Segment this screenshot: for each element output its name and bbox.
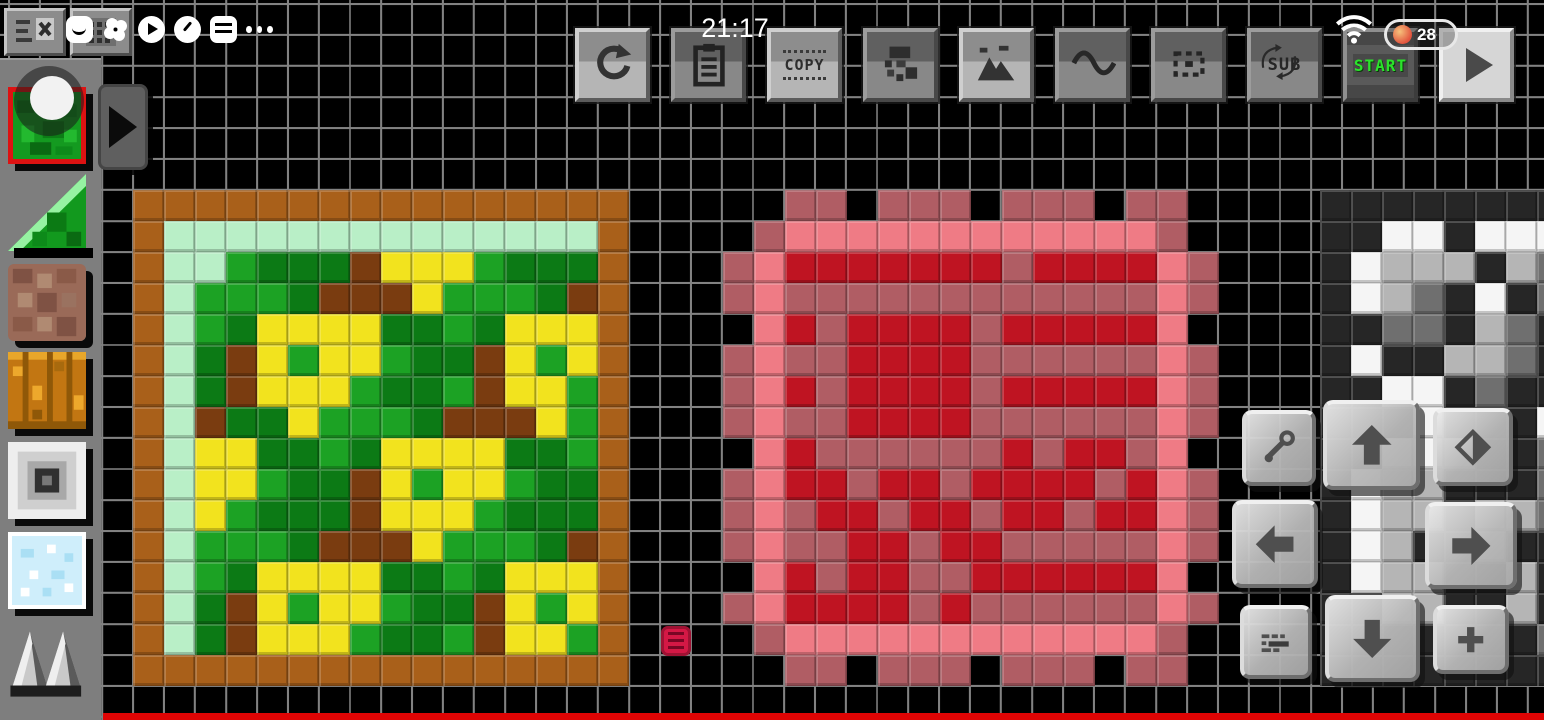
pixel-cell[interactable] [319,345,350,376]
pixel-cell[interactable] [319,314,350,345]
pixel-cell[interactable] [1157,407,1188,438]
pixel-cell[interactable] [1157,469,1188,500]
pixel-cell[interactable] [816,593,847,624]
pixel-cell[interactable] [1095,252,1126,283]
pixel-cell[interactable] [443,407,474,438]
pixel-cell[interactable] [536,593,567,624]
pixel-cell[interactable] [1188,252,1219,283]
pixel-cell[interactable] [816,221,847,252]
pixel-cell[interactable] [909,500,940,531]
pixel-cell[interactable] [598,376,629,407]
pixel-cell[interactable] [505,221,536,252]
pixel-cell[interactable] [878,562,909,593]
pixel-cell[interactable] [443,655,474,686]
pixel-cell[interactable] [288,562,319,593]
pixel-cell[interactable] [164,500,195,531]
pixel-cell[interactable] [1351,283,1382,314]
pixel-cell[interactable] [1126,655,1157,686]
pixel-cell[interactable] [1095,500,1126,531]
pixel-cell[interactable] [1188,376,1219,407]
pixel-cell[interactable] [1095,469,1126,500]
pixel-cell[interactable] [1064,655,1095,686]
pixel-cell[interactable] [847,407,878,438]
pixel-cell[interactable] [1033,562,1064,593]
pixel-cell[interactable] [443,500,474,531]
pixel-cell[interactable] [785,531,816,562]
pixel-cell[interactable] [971,624,1002,655]
pixel-cell[interactable] [257,376,288,407]
pixel-cell[interactable] [536,438,567,469]
pixel-cell[interactable] [195,500,226,531]
pixel-cell[interactable] [1188,345,1219,376]
pixel-cell[interactable] [1033,438,1064,469]
pixel-cell[interactable] [1033,190,1064,221]
pixel-cell[interactable] [971,469,1002,500]
pixel-cell[interactable] [319,283,350,314]
pixel-cell[interactable] [226,221,257,252]
pixel-cell[interactable] [940,190,971,221]
pixel-cell[interactable] [940,221,971,252]
pixel-cell[interactable] [1095,283,1126,314]
pixel-cell[interactable] [785,345,816,376]
pixel-cell[interactable] [412,190,443,221]
pixel-cell[interactable] [1537,376,1544,407]
pixel-cell[interactable] [754,252,785,283]
pixel-cell[interactable] [257,469,288,500]
pixel-cell[interactable] [1320,221,1351,252]
pixel-cell[interactable] [319,190,350,221]
clipboard-button[interactable] [671,28,746,102]
pixel-cell[interactable] [381,376,412,407]
pixel-cell[interactable] [443,314,474,345]
pixel-cell[interactable] [381,562,412,593]
pixel-cell[interactable] [133,345,164,376]
pixel-cell[interactable] [909,221,940,252]
pixel-cell[interactable] [598,252,629,283]
pixel-cell[interactable] [1413,345,1444,376]
pixel-cell[interactable] [1537,655,1544,686]
plus-button[interactable] [1433,605,1509,674]
pixel-cell[interactable] [567,376,598,407]
pixel-cell[interactable] [1382,531,1413,562]
pixel-cell[interactable] [381,438,412,469]
sidebar-item-ice-block[interactable] [8,532,86,609]
pixel-cell[interactable] [1537,345,1544,376]
pixel-cell[interactable] [754,500,785,531]
pixel-cell[interactable] [1475,345,1506,376]
pixel-cell[interactable] [1126,221,1157,252]
pixel-cell[interactable] [909,531,940,562]
pixel-cell[interactable] [412,221,443,252]
pixel-cell[interactable] [474,407,505,438]
pixel-cell[interactable] [816,376,847,407]
pixel-cell[interactable] [754,221,785,252]
pixel-cell[interactable] [1413,283,1444,314]
pixel-cell[interactable] [1002,438,1033,469]
pixel-cell[interactable] [164,190,195,221]
pixel-cell[interactable] [1033,345,1064,376]
pixel-cell[interactable] [878,500,909,531]
pixel-cell[interactable] [133,314,164,345]
pixel-cell[interactable] [1095,345,1126,376]
pixel-cell[interactable] [381,500,412,531]
pixel-cell[interactable] [909,314,940,345]
pixel-cell[interactable] [164,593,195,624]
pixel-cell[interactable] [1382,314,1413,345]
pixel-cell[interactable] [412,345,443,376]
pixel-cell[interactable] [536,407,567,438]
pixel-cell[interactable] [505,593,536,624]
pixel-cell[interactable] [226,469,257,500]
pixel-cell[interactable] [1064,531,1095,562]
pixel-cell[interactable] [381,190,412,221]
pixel-cell[interactable] [133,376,164,407]
pixel-cell[interactable] [1095,624,1126,655]
pixel-cell[interactable] [319,655,350,686]
pixel-cell[interactable] [164,438,195,469]
sidebar-item-spikes-block[interactable] [8,622,86,699]
pixel-cell[interactable] [474,252,505,283]
pixel-cell[interactable] [878,190,909,221]
pixel-cell[interactable] [1064,593,1095,624]
pixel-cell[interactable] [598,469,629,500]
pixel-cell[interactable] [536,469,567,500]
pixel-cell[interactable] [878,345,909,376]
pixel-cell[interactable] [1064,314,1095,345]
pixel-cell[interactable] [195,593,226,624]
pixel-cell[interactable] [847,531,878,562]
pixel-cell[interactable] [350,500,381,531]
pixel-cell[interactable] [598,190,629,221]
pixel-cell[interactable] [1033,531,1064,562]
pixel-cell[interactable] [878,593,909,624]
pixel-cell[interactable] [474,469,505,500]
right-button[interactable] [1425,502,1517,589]
pixel-cell[interactable] [909,655,940,686]
pixel-cell[interactable] [1382,562,1413,593]
pixel-cell[interactable] [1002,314,1033,345]
pixel-cell[interactable] [909,438,940,469]
pixel-cell[interactable] [443,345,474,376]
pixel-cell[interactable] [567,593,598,624]
pixel-cell[interactable] [878,438,909,469]
pixel-cell[interactable] [1064,562,1095,593]
pixel-cell[interactable] [909,345,940,376]
pixel-cell[interactable] [723,252,754,283]
pixel-cell[interactable] [1157,593,1188,624]
pixel-cell[interactable] [288,531,319,562]
pixel-cell[interactable] [381,283,412,314]
pixel-cell[interactable] [909,283,940,314]
pixel-cell[interactable] [288,593,319,624]
pixel-cell[interactable] [1537,407,1544,438]
pixel-cell[interactable] [350,345,381,376]
pixel-cell[interactable] [1320,531,1351,562]
pixel-cell[interactable] [288,469,319,500]
pixel-cell[interactable] [1126,190,1157,221]
pixel-cell[interactable] [288,314,319,345]
pixel-cell[interactable] [226,407,257,438]
pixel-cell[interactable] [878,655,909,686]
pixel-cell[interactable] [971,531,1002,562]
pixel-cell[interactable] [133,655,164,686]
pixel-cell[interactable] [1320,190,1351,221]
small-red-sprite[interactable] [661,626,691,656]
pixel-cell[interactable] [474,376,505,407]
pixel-cell[interactable] [257,655,288,686]
pixel-cell[interactable] [1157,376,1188,407]
pixel-cell[interactable] [816,283,847,314]
pixel-cell[interactable] [412,407,443,438]
pixel-cell[interactable] [909,593,940,624]
pixel-cell[interactable] [1506,314,1537,345]
pixel-cell[interactable] [474,190,505,221]
pixel-cell[interactable] [754,314,785,345]
pixel-cell[interactable] [195,438,226,469]
pixel-cell[interactable] [1506,345,1537,376]
pixel-cell[interactable] [1537,190,1544,221]
pixel-cell[interactable] [909,407,940,438]
pixel-cell[interactable] [1320,314,1351,345]
pixel-cell[interactable] [909,562,940,593]
pixel-cell[interactable] [940,500,971,531]
pixel-cell[interactable] [940,407,971,438]
pixel-cell[interactable] [412,593,443,624]
pixel-cell[interactable] [536,190,567,221]
pixel-cell[interactable] [1126,314,1157,345]
pixel-cell[interactable] [133,438,164,469]
pixel-cell[interactable] [1157,562,1188,593]
pixel-cell[interactable] [505,252,536,283]
pixel-cell[interactable] [1126,407,1157,438]
pixel-cell[interactable] [567,562,598,593]
pixel-cell[interactable] [381,531,412,562]
pixel-cell[interactable] [195,345,226,376]
pixel-cell[interactable] [319,469,350,500]
pixel-cell[interactable] [536,531,567,562]
pixel-cell[interactable] [816,624,847,655]
pixel-cell[interactable] [785,500,816,531]
pixel-cell[interactable] [1002,469,1033,500]
pixel-cell[interactable] [443,624,474,655]
pixel-cell[interactable] [505,314,536,345]
pixel-cell[interactable] [754,624,785,655]
pixel-cell[interactable] [443,531,474,562]
pixel-cell[interactable] [847,376,878,407]
sprite-button[interactable] [863,28,938,102]
pixel-cell[interactable] [1382,283,1413,314]
pixel-cell[interactable] [1320,283,1351,314]
pixel-cell[interactable] [847,221,878,252]
pixel-cell[interactable] [133,531,164,562]
pixel-cell[interactable] [288,283,319,314]
pixel-cell[interactable] [350,531,381,562]
pixel-cell[interactable] [164,221,195,252]
pixel-cell[interactable] [257,500,288,531]
pixel-cell[interactable] [598,624,629,655]
pixel-cell[interactable] [940,624,971,655]
pixel-cell[interactable] [1095,407,1126,438]
play-circle-icon[interactable] [138,16,165,43]
pixel-cell[interactable] [350,624,381,655]
pixel-cell[interactable] [940,345,971,376]
pixel-cell[interactable] [195,655,226,686]
pixel-cell[interactable] [443,221,474,252]
pixel-cell[interactable] [164,314,195,345]
sidebar-item-frame-block[interactable] [8,442,86,519]
play-button[interactable] [1439,28,1514,102]
pixel-cell[interactable] [536,221,567,252]
pixel-cell[interactable] [723,376,754,407]
pixel-cell[interactable] [381,345,412,376]
pixel-cell[interactable] [505,624,536,655]
pixel-cell[interactable] [567,469,598,500]
pixel-cell[interactable] [1351,500,1382,531]
pixel-cell[interactable] [536,562,567,593]
pixel-cell[interactable] [1413,190,1444,221]
pixel-cell[interactable] [567,314,598,345]
pixel-cell[interactable] [133,190,164,221]
pixel-cell[interactable] [785,469,816,500]
pixel-cell[interactable] [567,345,598,376]
pixel-cell[interactable] [1033,655,1064,686]
pixel-cell[interactable] [536,345,567,376]
pixel-cell[interactable] [133,252,164,283]
down-button[interactable] [1325,595,1420,682]
pixel-cell[interactable] [257,252,288,283]
pixel-cell[interactable] [1320,500,1351,531]
pixel-cell[interactable] [257,345,288,376]
pixel-cell[interactable] [567,655,598,686]
pixel-cell[interactable] [288,252,319,283]
pixel-cell[interactable] [226,593,257,624]
pixel-cell[interactable] [1064,190,1095,221]
pixel-cell[interactable] [1351,562,1382,593]
pixel-cell[interactable] [1126,252,1157,283]
pixel-cell[interactable] [1126,562,1157,593]
pixel-cell[interactable] [1002,593,1033,624]
pixel-cell[interactable] [1002,376,1033,407]
pixel-cell[interactable] [1126,500,1157,531]
pixel-cell[interactable] [723,531,754,562]
pixel-cell[interactable] [1002,345,1033,376]
pixel-cell[interactable] [723,407,754,438]
pixel-cell[interactable] [1475,190,1506,221]
pixel-cell[interactable] [940,314,971,345]
pixel-cell[interactable] [412,531,443,562]
pixel-cell[interactable] [909,469,940,500]
pixel-cell[interactable] [754,283,785,314]
pixel-cell[interactable] [1188,593,1219,624]
pixel-cell[interactable] [1064,624,1095,655]
pixel-cell[interactable] [412,562,443,593]
pixel-cell[interactable] [288,438,319,469]
pixel-cell[interactable] [785,314,816,345]
pixel-cell[interactable] [723,469,754,500]
pixel-cell[interactable] [971,593,1002,624]
pixel-cell[interactable] [1351,345,1382,376]
pixel-cell[interactable] [1064,469,1095,500]
pixel-cell[interactable] [536,314,567,345]
pinwheel-icon[interactable] [102,16,129,43]
pixel-cell[interactable] [1095,376,1126,407]
pixel-cell[interactable] [133,283,164,314]
pixel-cell[interactable] [381,593,412,624]
pixel-cell[interactable] [1320,345,1351,376]
pixel-cell[interactable] [567,190,598,221]
pixel-cell[interactable] [816,190,847,221]
pixel-cell[interactable] [1095,438,1126,469]
pixel-cell[interactable] [1506,624,1537,655]
pixel-cell[interactable] [505,469,536,500]
pixel-cell[interactable] [350,283,381,314]
pixel-cell[interactable] [1351,190,1382,221]
pixel-cell[interactable] [971,221,1002,252]
pixel-cell[interactable] [1033,407,1064,438]
pixel-cell[interactable] [381,221,412,252]
pixel-cell[interactable] [723,500,754,531]
pixel-cell[interactable] [1413,252,1444,283]
pixel-cell[interactable] [847,438,878,469]
pixel-cell[interactable] [350,190,381,221]
pixel-cell[interactable] [1126,624,1157,655]
pixel-cell[interactable] [723,593,754,624]
pixel-cell[interactable] [909,252,940,283]
pixel-cell[interactable] [1157,252,1188,283]
left-button[interactable] [1232,500,1318,588]
pixel-cell[interactable] [536,283,567,314]
pixel-cell[interactable] [1033,593,1064,624]
selection-button[interactable] [1151,28,1226,102]
pixel-cell[interactable] [350,221,381,252]
pixel-cell[interactable] [257,531,288,562]
pixel-cell[interactable] [474,500,505,531]
pixel-cell[interactable] [785,655,816,686]
pixel-cell[interactable] [195,283,226,314]
pixel-cell[interactable] [1002,252,1033,283]
pixel-cell[interactable] [195,376,226,407]
pixel-cell[interactable] [133,407,164,438]
pixel-cell[interactable] [878,531,909,562]
pixel-cell[interactable] [940,252,971,283]
pixel-cell[interactable] [878,221,909,252]
pixel-cell[interactable] [816,562,847,593]
pixel-cell[interactable] [971,407,1002,438]
pixel-cell[interactable] [1064,345,1095,376]
pixel-cell[interactable] [1095,593,1126,624]
pixel-cell[interactable] [1537,469,1544,500]
pixel-cell[interactable] [1444,283,1475,314]
pixel-cell[interactable] [1064,438,1095,469]
detail-button[interactable] [1240,605,1312,679]
pixel-cell[interactable] [785,407,816,438]
pixel-cell[interactable] [940,593,971,624]
pixel-cell[interactable] [785,283,816,314]
pixel-cell[interactable] [1002,624,1033,655]
pixel-cell[interactable] [1002,283,1033,314]
pixel-cell[interactable] [785,376,816,407]
pixel-cell[interactable] [536,252,567,283]
canvas-layer[interactable] [0,0,1544,720]
image-button[interactable] [959,28,1034,102]
pixel-cell[interactable] [1033,252,1064,283]
pixel-cell[interactable] [474,221,505,252]
pixel-cell[interactable] [1033,314,1064,345]
pixel-cell[interactable] [940,469,971,500]
pixel-cell[interactable] [1188,283,1219,314]
pixel-cell[interactable] [1188,500,1219,531]
pixel-cell[interactable] [226,345,257,376]
